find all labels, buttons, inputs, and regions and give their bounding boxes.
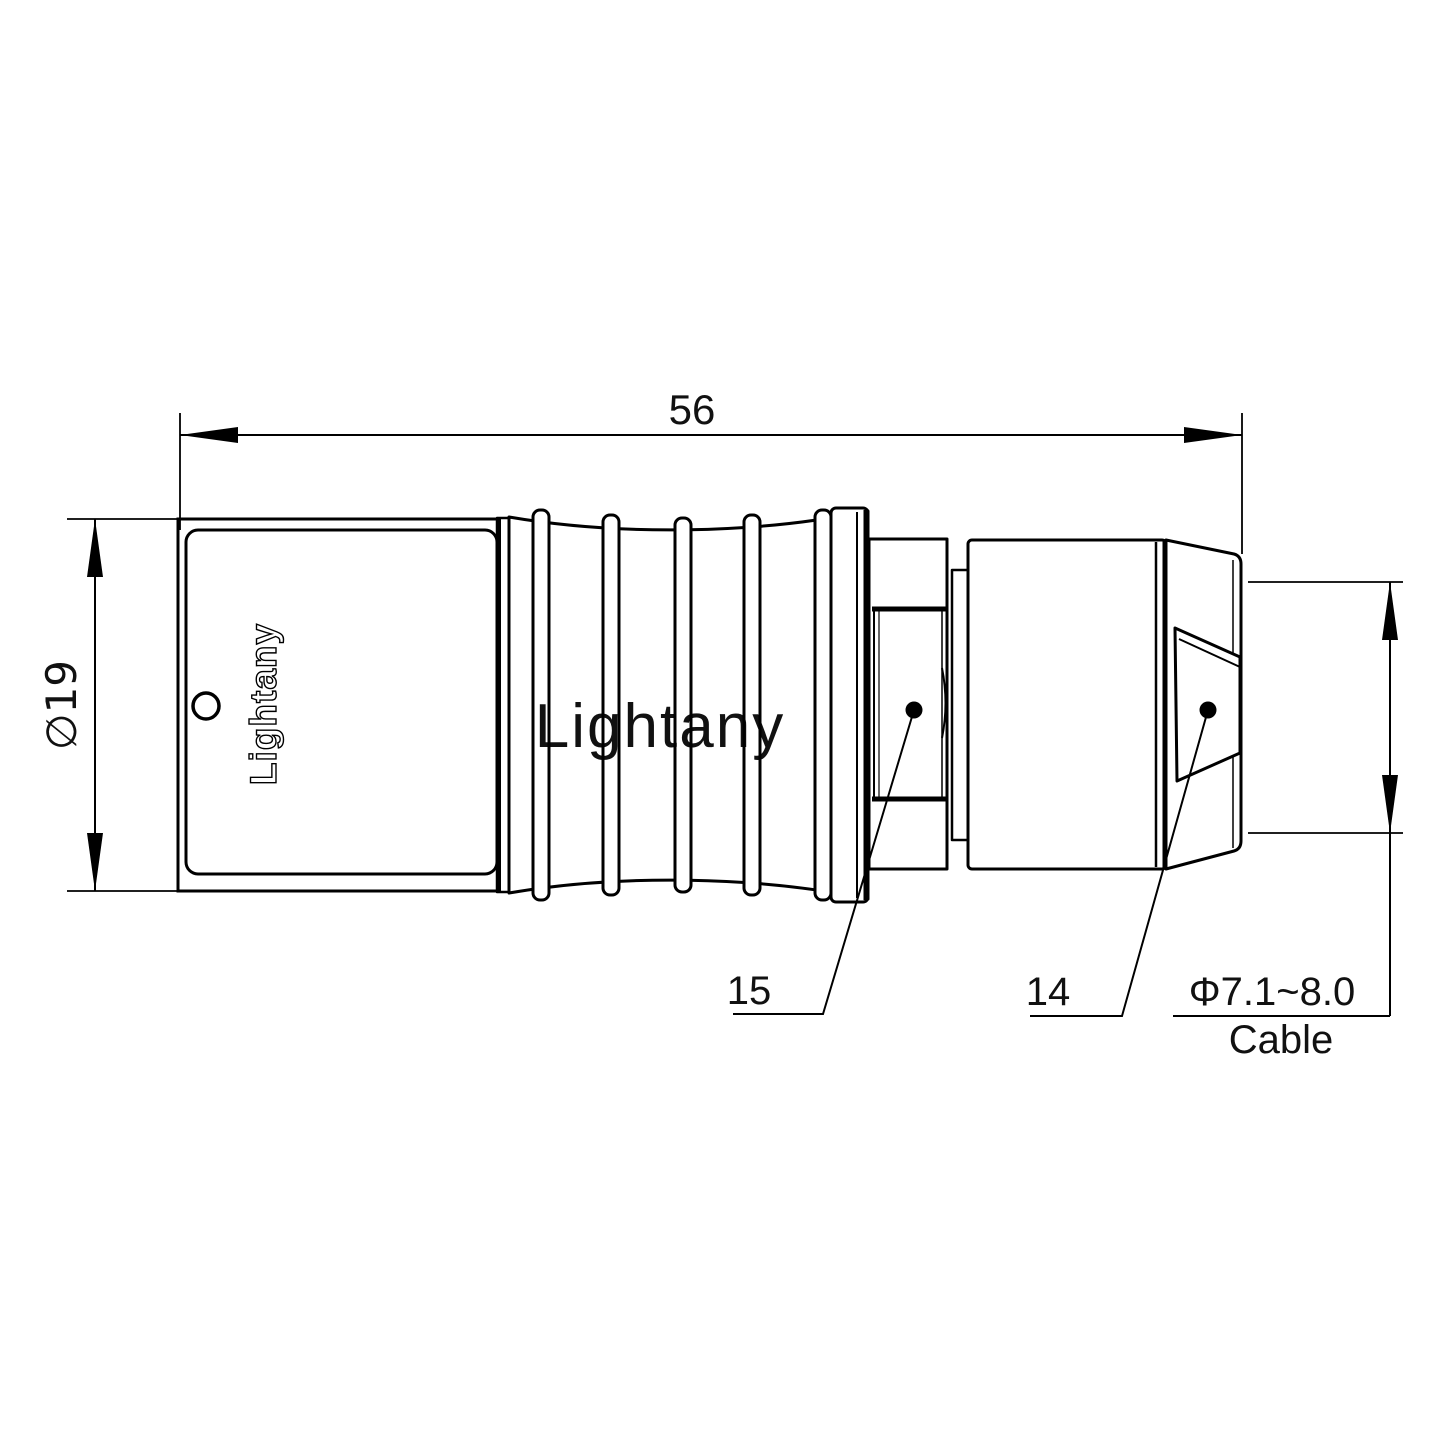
connector-drawing-svg: Lightany [0, 0, 1440, 1440]
grip-end-collar [831, 508, 868, 902]
arrowhead-left [180, 427, 238, 443]
backshell [968, 540, 1241, 869]
part-label-14: 14 [1026, 970, 1071, 1014]
dimension-body-diameter: ∅19 [37, 519, 186, 891]
arrowhead-bottom [1382, 775, 1398, 833]
grip-rib [815, 510, 831, 900]
arrowhead-right [1184, 427, 1242, 443]
brand-engraving: Lightany [243, 623, 284, 785]
arrowhead-top [1382, 582, 1398, 640]
cable-caption: Cable [1229, 1018, 1334, 1062]
leader-dot [1200, 702, 1217, 719]
leader-dot [906, 702, 923, 719]
body-hole [193, 693, 219, 719]
cable-diameter-value: Φ7.1~8.0 [1189, 970, 1355, 1014]
dimension-value-diameter-19: ∅19 [37, 660, 86, 750]
arrowhead-top [87, 519, 103, 577]
main-body-face [186, 530, 497, 874]
neck-ring [952, 570, 968, 840]
technical-drawing-canvas: Lightany [0, 0, 1440, 1440]
arrowhead-bottom [87, 833, 103, 891]
part-label-15: 15 [727, 969, 772, 1013]
backshell-body [968, 540, 1166, 869]
dimension-value-56: 56 [669, 386, 716, 433]
main-body: Lightany [178, 518, 509, 892]
watermark-text: Lightany [535, 692, 785, 761]
